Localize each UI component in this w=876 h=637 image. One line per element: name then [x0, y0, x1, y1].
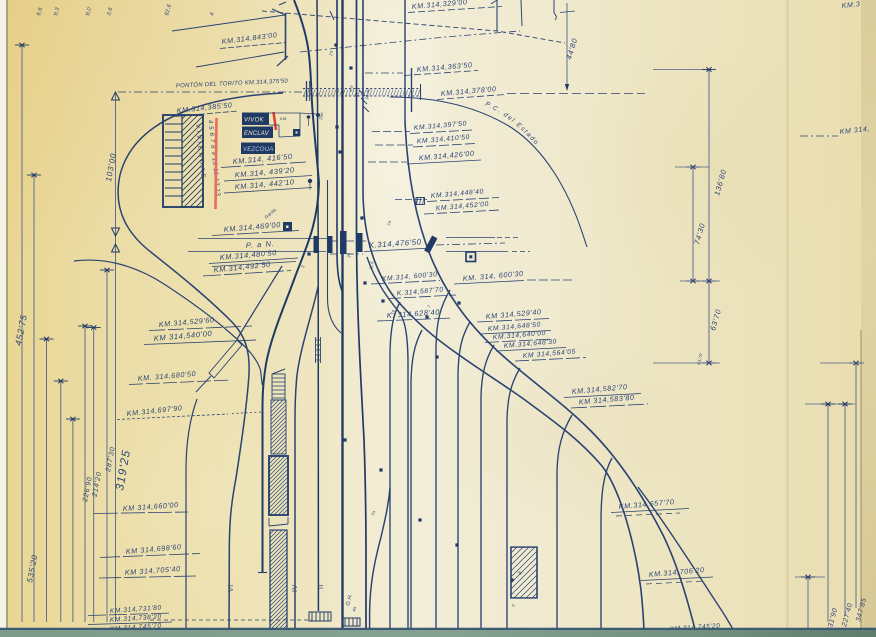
svg-text:KM 314,705'40: KM 314,705'40 — [125, 564, 181, 577]
svg-text:KM 314,529'40: KM 314,529'40 — [485, 307, 542, 321]
svg-text:7a: 7a — [370, 510, 376, 517]
svg-text:535'20: 535'20 — [25, 554, 39, 584]
svg-text:KM 314,540'00: KM 314,540'00 — [153, 329, 212, 343]
svg-text:KM.3: KM.3 — [841, 1, 860, 10]
svg-text:KM 314,583'80: KM 314,583'80 — [578, 393, 635, 407]
svg-text:92,6: 92,6 — [164, 3, 173, 17]
svg-text:25: 25 — [328, 50, 334, 58]
svg-text:24: 24 — [346, 252, 352, 259]
svg-text:KM.314,385'50: KM.314,385'50 — [176, 100, 233, 115]
svg-text:9,6: 9,6 — [36, 6, 44, 16]
svg-text:KM.314,529'60: KM.314,529'60 — [158, 315, 215, 329]
svg-text:9,0: 9,0 — [85, 6, 93, 16]
svg-text:KM.314,363'50: KM.314,363'50 — [416, 60, 473, 74]
svg-text:63'70: 63'70 — [708, 308, 723, 332]
svg-text:KM.314,448'40: KM.314,448'40 — [431, 188, 485, 200]
svg-text:V i V i E N D A S: V i V i E N D A S — [194, 124, 206, 179]
svg-text:3,6: 3,6 — [106, 6, 114, 16]
svg-text:4 5 6 7 8 9 10 11 12 13: 4 5 6 7 8 9 10 11 12 13 — [207, 119, 222, 196]
svg-text:ENCLAV: ENCLAV — [244, 131, 270, 137]
svg-text:KM.314,706'20: KM.314,706'20 — [648, 565, 705, 579]
svg-text:PONTÓN DEL TORITO KM.314,375': PONTÓN DEL TORITO KM.314,375'50 — [176, 78, 289, 90]
svg-text:214'20: 214'20 — [91, 471, 103, 498]
svg-text:227'40: 227'40 — [841, 602, 854, 628]
svg-text:25o: 25o — [318, 111, 324, 121]
svg-text:7: 7 — [426, 304, 432, 309]
svg-text:4a: 4a — [351, 606, 357, 613]
svg-text:G.H.: G.H. — [345, 593, 354, 607]
svg-text:4: 4 — [209, 12, 216, 17]
svg-text:74'30: 74'30 — [692, 222, 707, 246]
svg-text:c: c — [511, 602, 518, 608]
svg-text:347'85: 347'85 — [855, 597, 868, 622]
svg-text:VI: VI — [228, 584, 235, 592]
svg-text:VIVOK: VIVOK — [244, 118, 265, 124]
svg-text:KM 314,698'60: KM 314,698'60 — [125, 542, 182, 556]
svg-text:452'75: 452'75 — [13, 313, 29, 346]
svg-text:VEZCOUA: VEZCOUA — [243, 147, 273, 153]
svg-text:KM 314,660'00: KM 314,660'00 — [123, 500, 179, 513]
svg-text:38,40: 38,40 — [364, 88, 371, 101]
svg-text:II: II — [318, 584, 325, 589]
svg-text:IV: IV — [292, 584, 299, 592]
svg-text:136'80: 136'80 — [712, 168, 728, 197]
svg-text:319'25: 319'25 — [114, 449, 133, 492]
svg-text:P.C. del Estado: P.C. del Estado — [484, 101, 540, 148]
svg-text:KM.314,697'90: KM.314,697'90 — [126, 403, 183, 418]
svg-text:KM. 314,680'50: KM. 314,680'50 — [137, 369, 196, 383]
svg-text:KM.314,410'50: KM.314,410'50 — [417, 134, 471, 146]
svg-text:KM 314,: KM 314, — [839, 126, 870, 136]
svg-text:11,6: 11,6 — [368, 260, 375, 270]
svg-text:K.314,476'50: K.314,476'50 — [369, 237, 422, 250]
svg-text:KM.314,657'70: KM.314,657'70 — [618, 497, 675, 511]
svg-text:KM.314,397'50: KM.314,397'50 — [414, 120, 468, 132]
svg-text:KM: KM — [280, 116, 287, 121]
svg-text:7a: 7a — [386, 220, 392, 226]
svg-text:Garita: Garita — [263, 207, 277, 220]
svg-text:2: 2 — [300, 264, 306, 269]
svg-text:9,3: 9,3 — [53, 6, 61, 16]
